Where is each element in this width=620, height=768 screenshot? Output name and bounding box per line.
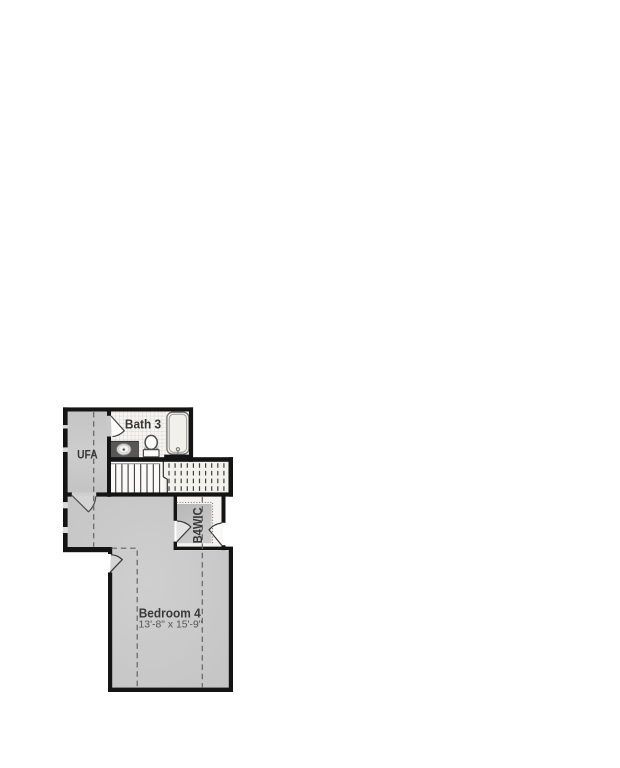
svg-text:Bedroom 4: Bedroom 4 bbox=[139, 605, 202, 620]
svg-text:UFA: UFA bbox=[77, 448, 98, 462]
svg-text:13'-8" x 15'-9": 13'-8" x 15'-9" bbox=[139, 619, 203, 630]
svg-text:B4WIC: B4WIC bbox=[190, 507, 205, 544]
svg-text:Bath 3: Bath 3 bbox=[125, 418, 161, 432]
